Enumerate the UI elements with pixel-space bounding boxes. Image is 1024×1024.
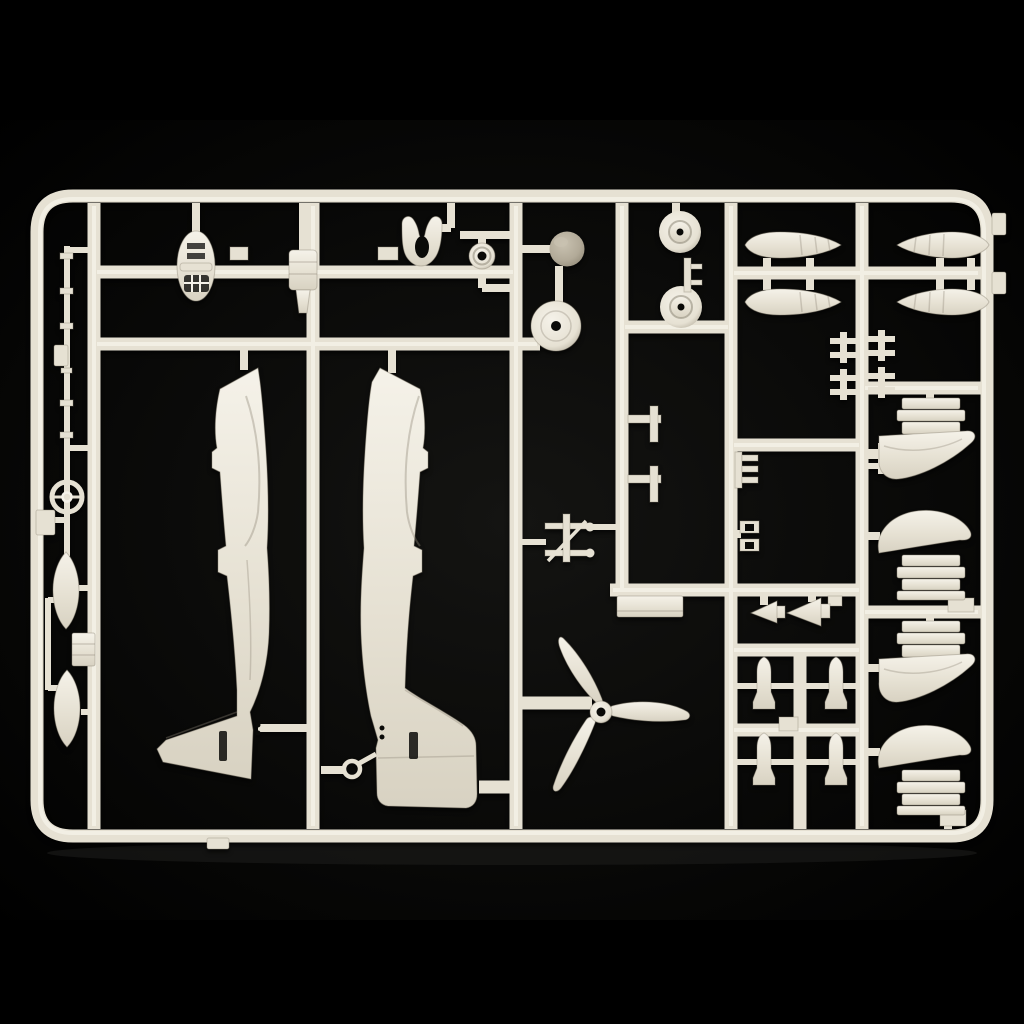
main-wheel-lower: [660, 286, 702, 328]
sight-ring: [50, 480, 84, 514]
left-block-part: [72, 633, 95, 666]
spinner-dome: [550, 232, 585, 267]
frame-shadow: [47, 841, 977, 865]
flat-plate-part: [617, 596, 683, 617]
main-wheel-upper: [659, 211, 701, 253]
wheel-disc: [531, 301, 581, 351]
left-edge-block: [36, 510, 55, 535]
ring-hub-part: [469, 243, 495, 269]
cowl-front-part: [177, 231, 215, 301]
photo-stage: [0, 0, 1024, 1024]
sprue-photo: [0, 0, 1024, 1024]
comb-part: [735, 452, 758, 488]
